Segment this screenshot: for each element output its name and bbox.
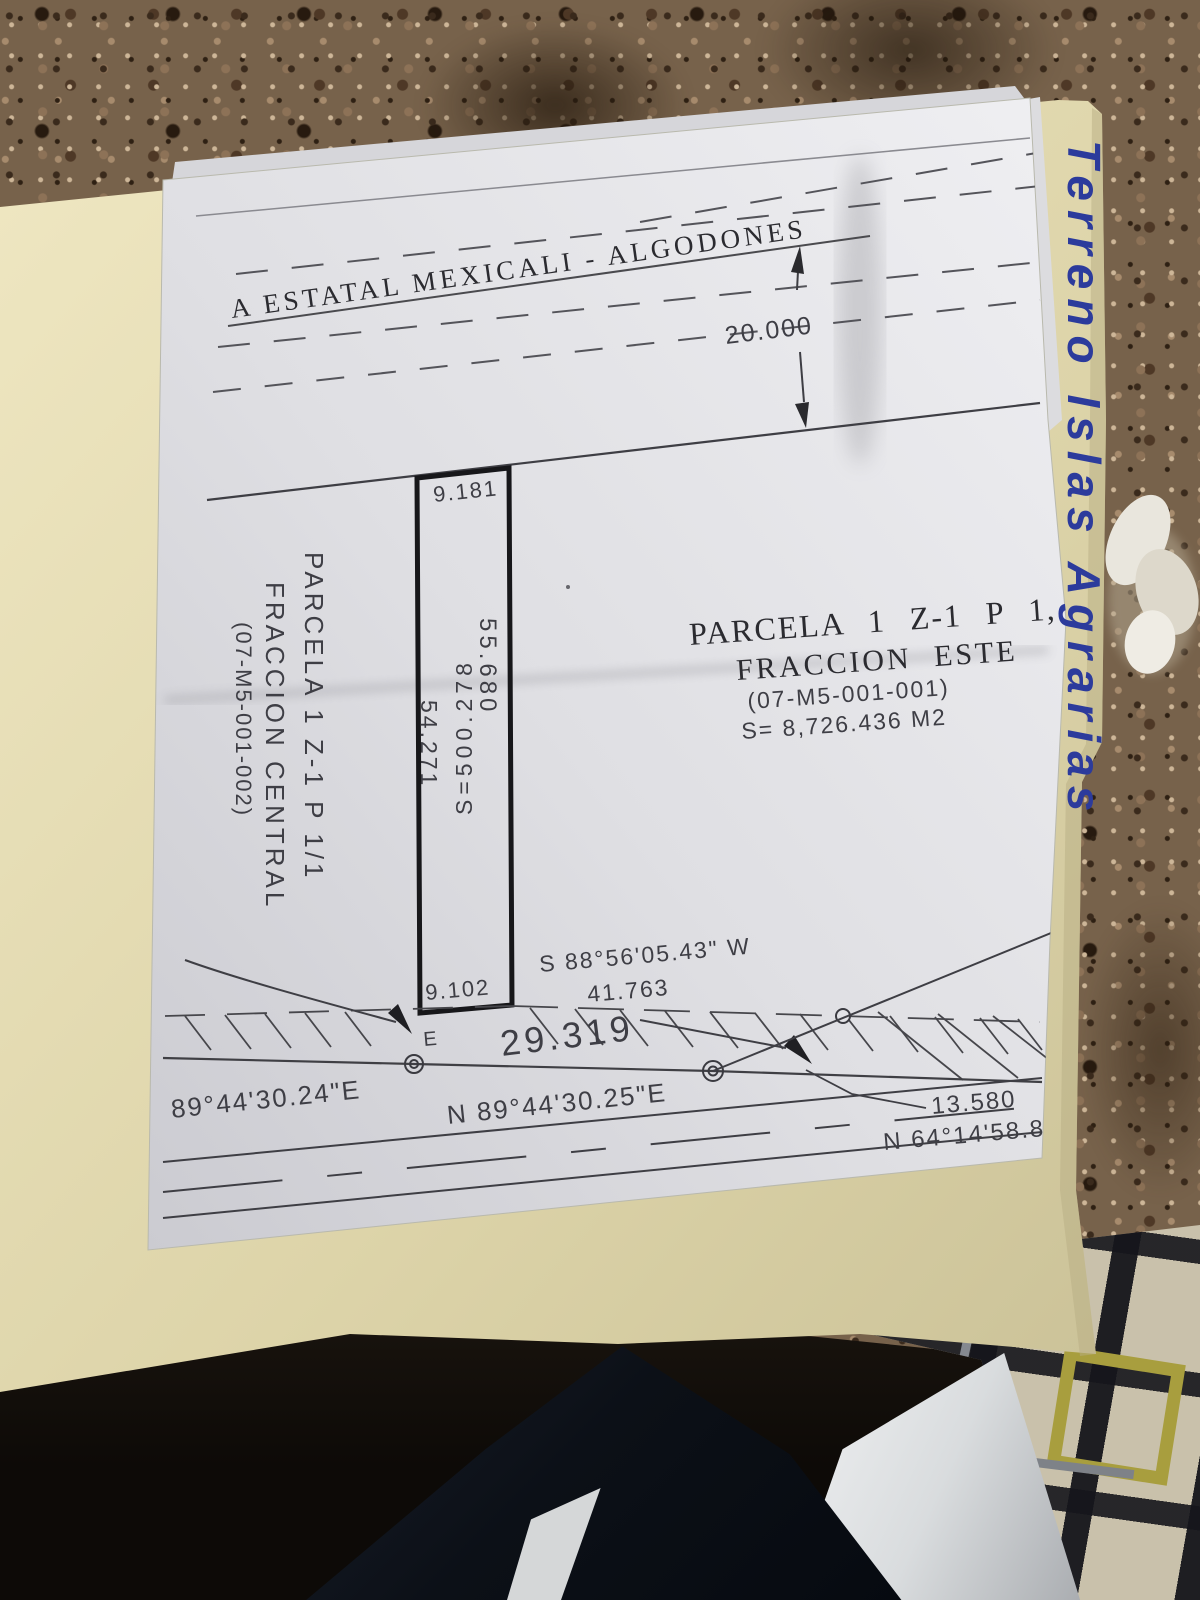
folder-and-plan-layer: A ESTATAL MEXICALI - ALGODONES 20.000 9.…: [0, 0, 1200, 1600]
point-label-e: E: [423, 1028, 438, 1051]
strip-east-length: 55.680: [474, 618, 501, 715]
folder-handwriting: Terreno Islas Agrarias: [1058, 140, 1110, 820]
strip-west-length: 54.271: [416, 700, 442, 788]
photo-of-survey-document: A ESTATAL MEXICALI - ALGODONES 20.000 9.…: [0, 0, 1200, 1600]
neighbor-line-1: PARCELA 1 Z-1 P 1/1: [299, 552, 329, 881]
plot-dot: [566, 585, 570, 589]
strip-area: S=500.278: [451, 658, 477, 815]
paper-smudge: [838, 155, 882, 465]
neighbor-line-2: FRACCION CENTRAL: [260, 582, 290, 910]
neighbor-line-3: (07-M5-001-002): [231, 622, 256, 817]
